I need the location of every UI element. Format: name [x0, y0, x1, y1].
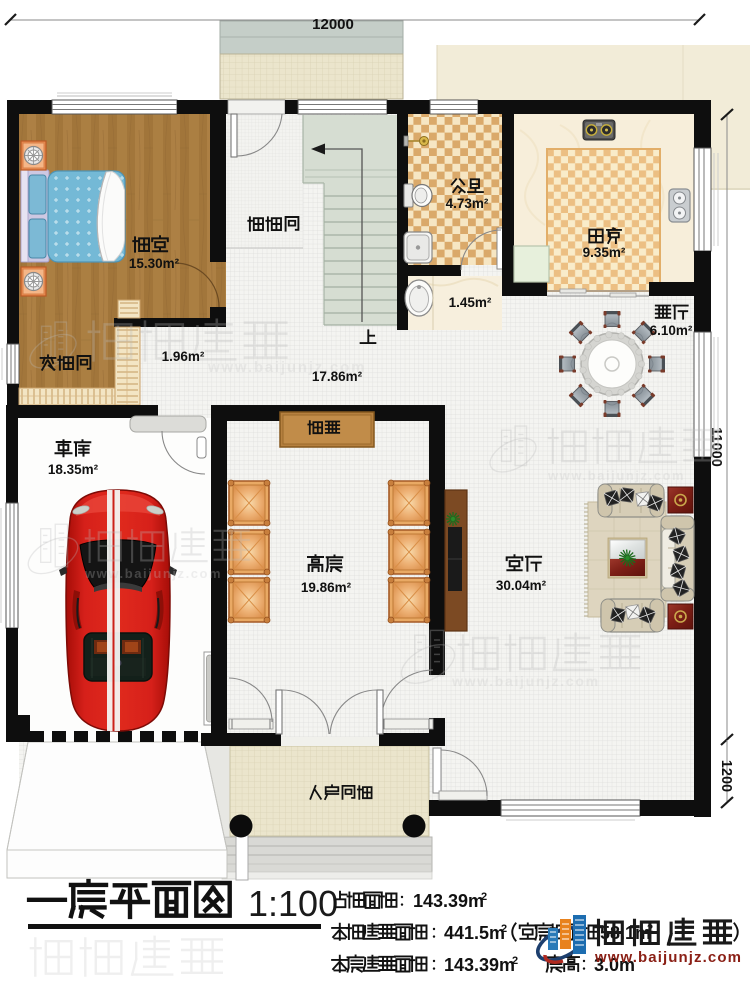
- svg-text:2: 2: [501, 923, 507, 935]
- svg-text:17.86m²: 17.86m²: [312, 369, 363, 384]
- svg-text:9.35m²: 9.35m²: [583, 245, 626, 260]
- svg-text:2: 2: [481, 891, 487, 903]
- svg-text:441.5m: 441.5m: [444, 923, 505, 943]
- svg-text:www.baijunjz.com: www.baijunjz.com: [594, 949, 742, 966]
- svg-text:30.04m²: 30.04m²: [496, 578, 547, 593]
- svg-text:1.96m²: 1.96m²: [162, 349, 205, 364]
- svg-text:1:100: 1:100: [248, 883, 338, 924]
- svg-text:1200: 1200: [718, 760, 734, 792]
- svg-text:2: 2: [512, 955, 518, 967]
- svg-text:www.baijunjz.com: www.baijunjz.com: [84, 566, 222, 581]
- svg-text:15.30m²: 15.30m²: [129, 256, 180, 271]
- svg-text:143.39m: 143.39m: [413, 891, 484, 911]
- svg-text:www.baijunjz.com: www.baijunjz.com: [451, 673, 600, 689]
- svg-text:4.73m²: 4.73m²: [446, 196, 489, 211]
- svg-text:18.35m²: 18.35m²: [48, 462, 99, 477]
- svg-text:1.45m²: 1.45m²: [449, 295, 492, 310]
- svg-text:www.baijunjz.com: www.baijunjz.com: [547, 468, 685, 483]
- svg-text:143.39m: 143.39m: [444, 955, 515, 975]
- svg-text:12000: 12000: [312, 16, 354, 33]
- svg-text:6.10m²: 6.10m²: [650, 323, 693, 338]
- svg-text:19.86m²: 19.86m²: [301, 580, 352, 595]
